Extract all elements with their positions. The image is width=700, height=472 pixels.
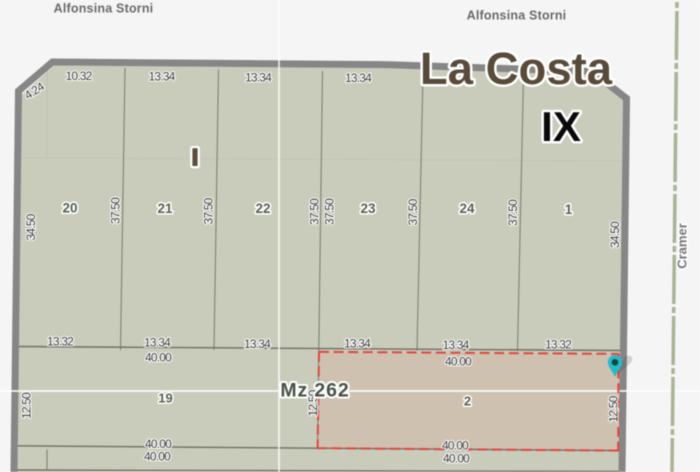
svg-text:13.32: 13.32 (47, 335, 74, 349)
svg-text:40.00: 40.00 (442, 439, 469, 453)
svg-text:19: 19 (158, 391, 172, 406)
svg-text:13.34: 13.34 (344, 337, 371, 351)
svg-text:23: 23 (360, 201, 376, 216)
svg-text:22: 22 (255, 201, 270, 216)
svg-text:40.00: 40.00 (443, 452, 470, 466)
svg-text:34.50: 34.50 (608, 221, 622, 248)
svg-text:40.00: 40.00 (144, 450, 171, 464)
svg-text:10.32: 10.32 (65, 69, 92, 83)
svg-text:13.34: 13.34 (442, 338, 469, 352)
svg-text:21: 21 (157, 201, 173, 216)
svg-text:Cramer: Cramer (675, 223, 690, 269)
svg-text:40.00: 40.00 (145, 351, 172, 365)
svg-text:Alfonsina Storni: Alfonsina Storni (467, 9, 567, 23)
svg-text:37.50: 37.50 (506, 199, 520, 226)
svg-text:Mz 262: Mz 262 (280, 379, 349, 401)
svg-text:34.50: 34.50 (24, 213, 38, 240)
svg-text:1: 1 (565, 202, 573, 217)
svg-text:12.50: 12.50 (20, 392, 34, 419)
svg-text:37.50: 37.50 (109, 197, 123, 224)
svg-text:20: 20 (62, 201, 77, 216)
svg-text:Alfonsina Storni: Alfonsina Storni (54, 2, 154, 16)
svg-text:13.32: 13.32 (545, 338, 572, 352)
svg-text:La Costa: La Costa (420, 43, 613, 94)
svg-text:12.50: 12.50 (607, 395, 621, 422)
svg-text:13.34: 13.34 (345, 71, 372, 85)
svg-text:37.50: 37.50 (202, 197, 216, 224)
svg-text:37.50: 37.50 (406, 198, 420, 225)
svg-text:IX: IX (541, 103, 581, 150)
svg-text:13.34: 13.34 (144, 336, 171, 350)
svg-text:24: 24 (459, 201, 475, 216)
svg-text:2: 2 (464, 394, 471, 409)
svg-text:40.00: 40.00 (445, 355, 472, 369)
svg-text:13.34: 13.34 (245, 70, 272, 84)
svg-text:37.50: 37.50 (308, 198, 322, 225)
svg-text:37.50: 37.50 (323, 198, 337, 225)
svg-text:13.34: 13.34 (148, 69, 175, 83)
svg-text:13.34: 13.34 (244, 337, 271, 351)
